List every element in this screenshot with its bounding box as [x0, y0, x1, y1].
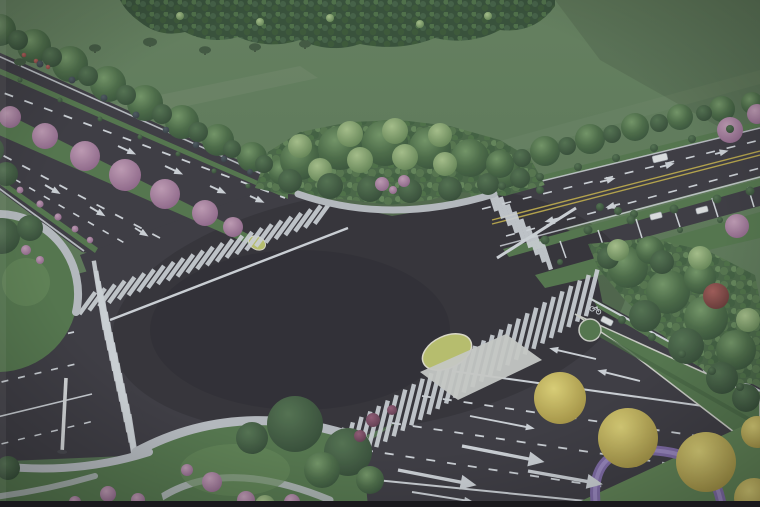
- vignette: [0, 0, 760, 507]
- photo-bottom-edge: [0, 501, 760, 507]
- left-light-leak: [0, 0, 6, 507]
- intersection-rendering: [0, 0, 760, 507]
- rendering-photo: [0, 0, 760, 507]
- photo-overlays: [0, 0, 760, 507]
